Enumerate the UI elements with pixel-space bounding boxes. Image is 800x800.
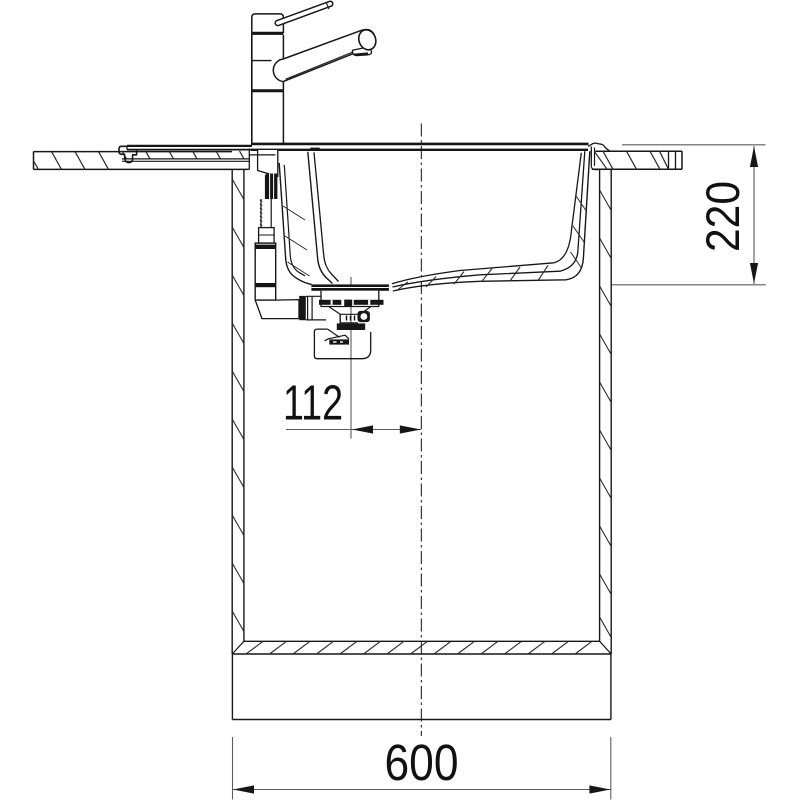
svg-text:220: 220 [696,181,749,252]
svg-text:112: 112 [283,377,343,431]
svg-text:600: 600 [385,734,459,791]
